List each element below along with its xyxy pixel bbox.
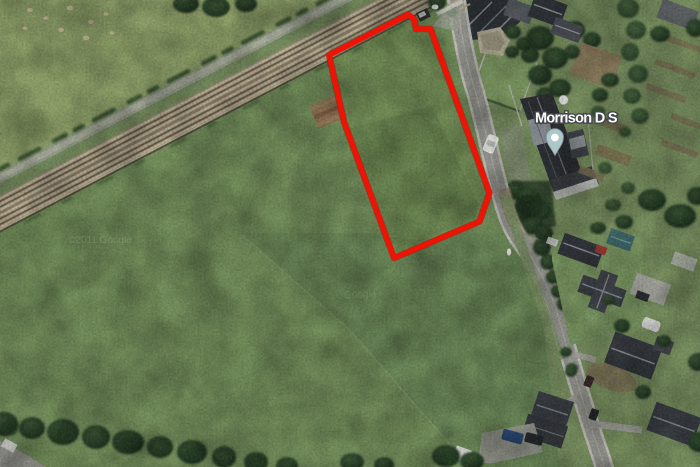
svg-text:Google: Google: [344, 290, 377, 301]
svg-text:©2011 Google: ©2011 Google: [68, 235, 132, 246]
svg-text:Morrison D S: Morrison D S: [535, 111, 618, 127]
